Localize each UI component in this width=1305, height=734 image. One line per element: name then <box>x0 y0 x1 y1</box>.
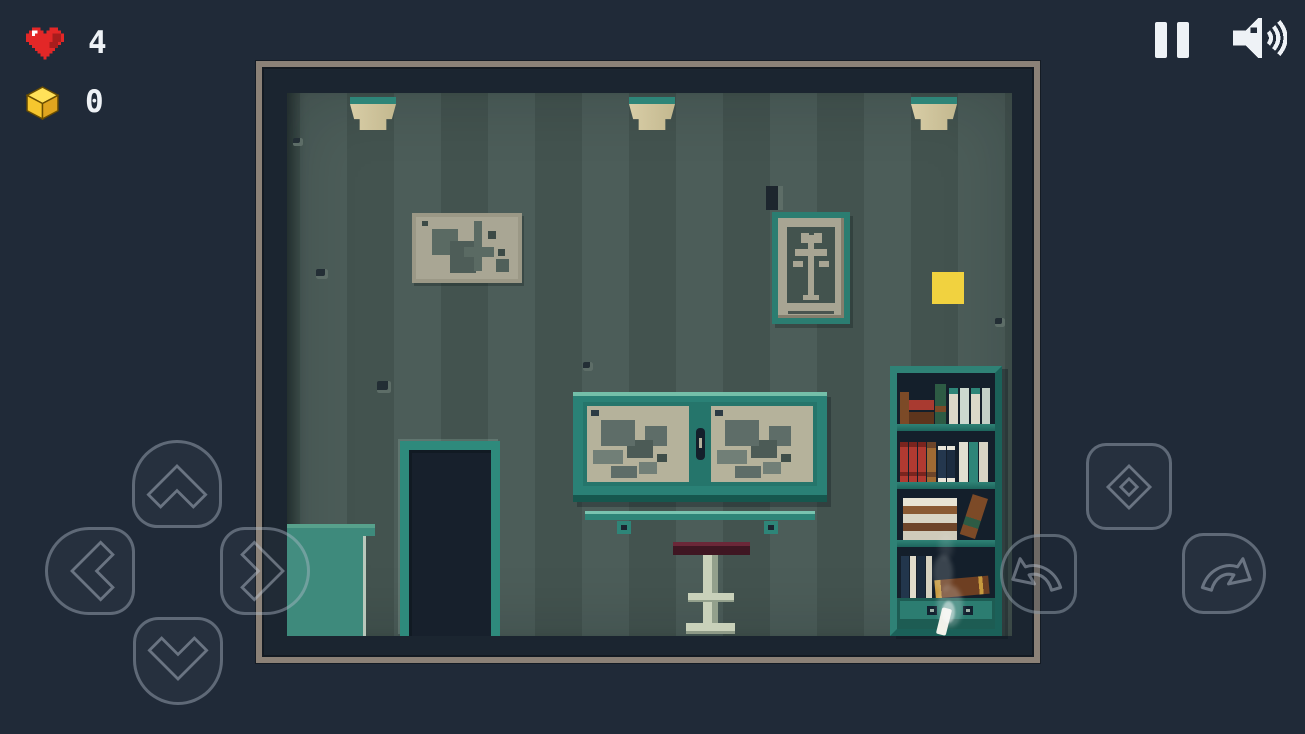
lives-counter: 4 <box>26 27 107 60</box>
rail-hook <box>617 521 631 534</box>
chevron-down-icon <box>141 625 215 697</box>
smoke <box>933 555 953 591</box>
pause-button[interactable] <box>1154 22 1190 60</box>
wall-cabinet[interactable] <box>573 392 827 502</box>
interact-button[interactable] <box>1086 443 1172 530</box>
dpad-down-button[interactable] <box>133 617 223 705</box>
game-frame <box>256 61 1040 663</box>
wall-speck <box>293 138 303 146</box>
wall-speck <box>377 381 391 393</box>
heart-icon <box>26 27 64 60</box>
drawer-handle[interactable] <box>963 606 973 615</box>
chevron-left-icon <box>54 534 126 608</box>
door[interactable] <box>400 441 500 636</box>
dpad-right-button[interactable] <box>220 527 310 615</box>
wall-speck <box>995 318 1005 327</box>
cabinet-door-left[interactable] <box>583 402 693 486</box>
ceiling-lamp <box>911 97 957 130</box>
rail-hook <box>764 521 778 534</box>
speaker-icon <box>1229 13 1287 63</box>
ceiling-lamp <box>629 97 675 130</box>
chevron-up-icon <box>140 448 214 520</box>
dpad-up-button[interactable] <box>132 440 222 528</box>
portrait-art <box>787 227 835 303</box>
undo-button[interactable] <box>1000 534 1077 614</box>
wall-speck <box>316 269 328 279</box>
lives-value: 4 <box>88 28 107 59</box>
smoke <box>937 585 963 627</box>
pause-icon <box>1155 22 1189 58</box>
ceiling-lamp <box>350 97 396 130</box>
wall-speck <box>583 362 593 371</box>
stool[interactable] <box>673 542 750 636</box>
curved-arrow-left-icon <box>1003 538 1075 610</box>
game-screen: { "hud": { "lives": { "icon": "heart-ico… <box>0 0 1305 734</box>
smoke <box>939 533 953 559</box>
dpad-left-button[interactable] <box>45 527 135 615</box>
drawer-handle[interactable] <box>927 606 937 615</box>
cubes-value: 0 <box>85 87 104 118</box>
yellow-cube[interactable] <box>932 272 964 304</box>
cubes-counter: 0 <box>24 84 104 121</box>
diamond-icon <box>1092 451 1166 523</box>
cube-icon <box>24 84 61 121</box>
redo-button[interactable] <box>1182 533 1266 614</box>
portrait-picture[interactable] <box>772 212 850 324</box>
chevron-right-icon <box>229 534 301 608</box>
wall-hook <box>766 186 783 210</box>
map-picture[interactable] <box>412 213 522 283</box>
room-wall <box>287 93 1012 636</box>
coat-rail <box>585 511 815 520</box>
curved-arrow-right-icon <box>1187 538 1261 610</box>
volume-button[interactable] <box>1228 13 1288 65</box>
cabinet-door-right[interactable] <box>707 402 817 486</box>
